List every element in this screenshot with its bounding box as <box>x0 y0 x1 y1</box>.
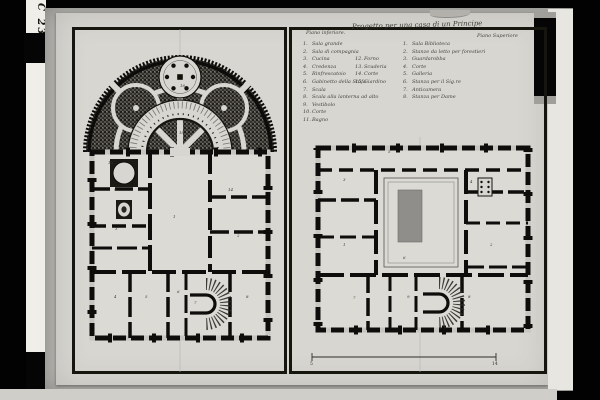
fountain-tempietto <box>159 56 201 98</box>
semicircular-garden <box>85 56 275 152</box>
room-number: 18 <box>179 130 185 135</box>
palazzo-upper-floor <box>318 148 528 330</box>
ground-floor-plan: 16181091413245678 <box>72 27 287 374</box>
scale-bar: 5 14 <box>310 353 498 367</box>
round-cabinet <box>110 159 138 187</box>
heading-piano-superiore: Piano Superiore <box>477 34 518 39</box>
room-number: 4 <box>469 179 473 184</box>
room-number: 4 <box>113 294 117 299</box>
room-number: 14 <box>228 187 234 192</box>
mount-bottom-strip <box>0 389 557 400</box>
scale-end-label: 14 <box>492 361 498 367</box>
room-number: 16 <box>180 83 186 88</box>
palazzo-ground-floor <box>92 148 268 338</box>
legend-column-left: 1.Sala grande2.Sala di compagnia3.Cucina… <box>303 42 403 126</box>
heading-piano-inferiore: Piano inferiore. <box>306 31 345 36</box>
courtyard-opening <box>398 190 422 242</box>
room-number: 1 <box>173 214 176 219</box>
small-service-stair <box>478 178 492 196</box>
legend-item: 11.Bagno <box>303 118 403 126</box>
court-entrance <box>170 148 190 156</box>
stove-basin <box>116 200 132 219</box>
scale-start-label: 5 <box>310 361 313 367</box>
room-number: 1 <box>343 242 346 247</box>
photograph-of-architectural-drawing: C 23 <box>0 0 600 400</box>
room-number: 2 <box>489 242 493 247</box>
legend-item: 8.Stanza per Dame <box>403 95 508 103</box>
room-number: 2 <box>236 233 240 238</box>
room-number: 10 <box>108 160 114 165</box>
legend-column-right: 1.Sala Biblioteca2.Stanze da letto per f… <box>403 42 508 103</box>
